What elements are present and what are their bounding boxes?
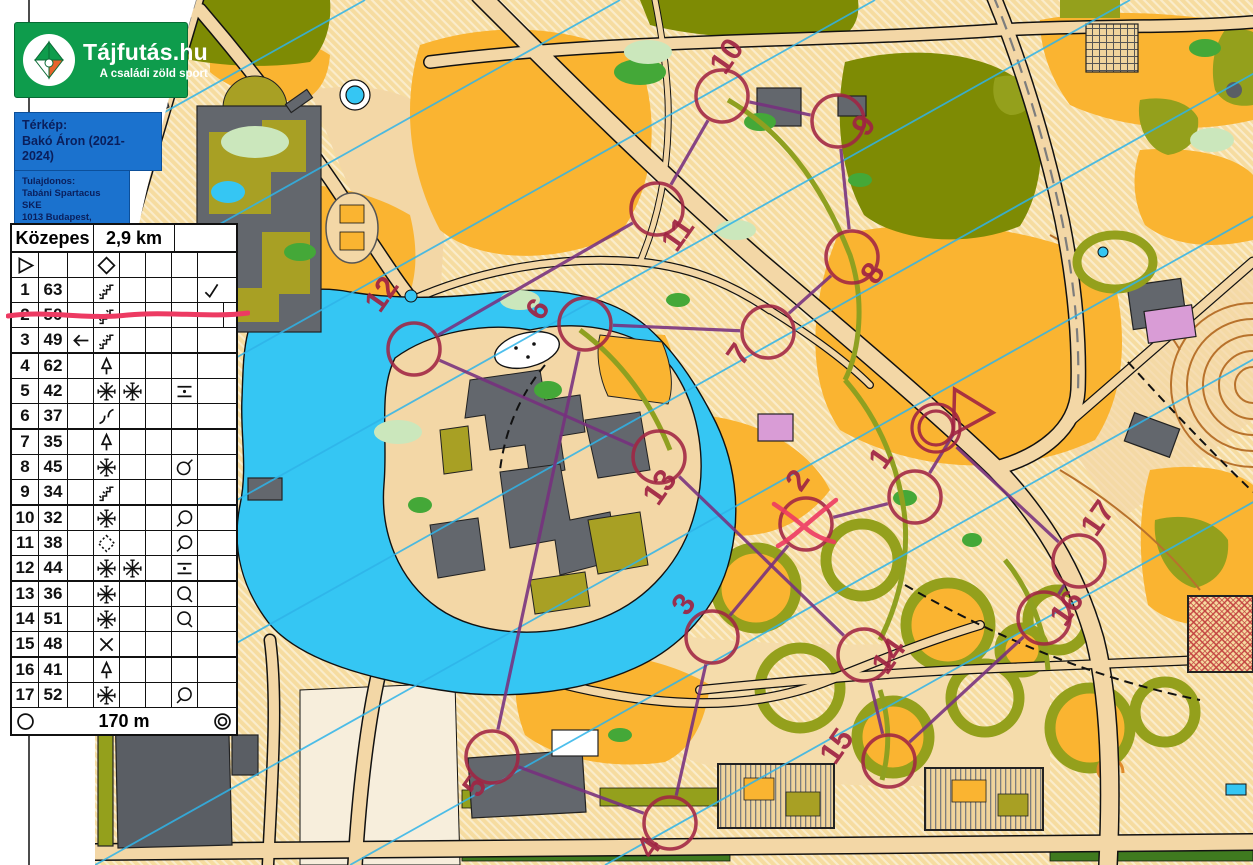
cell-d xyxy=(94,607,120,631)
control-number: 15 xyxy=(12,632,39,656)
control-code: 32 xyxy=(39,506,68,530)
owner-line: Tabáni Spartacus SKE xyxy=(22,188,122,212)
cell-e xyxy=(120,354,146,378)
cell-e xyxy=(120,531,146,555)
course-length: 2,9 km xyxy=(94,225,175,251)
cell-c xyxy=(68,658,94,682)
cell-d xyxy=(94,480,120,504)
cell-e xyxy=(120,430,146,454)
cell-d xyxy=(94,683,120,707)
cell-h xyxy=(198,506,224,530)
cell-g xyxy=(172,531,198,555)
cell-g xyxy=(172,658,198,682)
cell-d xyxy=(94,506,120,530)
control-description-card: Közepes 2,9 km 1632503494625426377358459… xyxy=(10,223,238,736)
card-row-5: 542 xyxy=(12,379,236,404)
cell-h xyxy=(198,303,224,327)
cell-g xyxy=(172,354,198,378)
thicket-icon xyxy=(96,558,117,579)
card-row-6: 637 xyxy=(12,404,236,430)
cell-h xyxy=(198,278,224,302)
cell-e xyxy=(120,253,146,277)
cell-h xyxy=(198,404,224,428)
pinwheel-compass-icon xyxy=(23,34,75,86)
cell-e xyxy=(120,683,146,707)
control-number: 16 xyxy=(12,658,39,682)
control-number: 14 xyxy=(12,607,39,631)
cell-e xyxy=(120,556,146,580)
side-w-icon xyxy=(174,533,195,554)
cell-e xyxy=(120,379,146,403)
cell-c xyxy=(68,455,94,479)
control-code: 41 xyxy=(39,658,68,682)
control-number: 17 xyxy=(12,683,39,707)
cell-h xyxy=(198,354,224,378)
stairway-icon xyxy=(96,305,117,326)
tree-icon xyxy=(96,432,117,453)
side-se-icon xyxy=(174,584,195,605)
card-row-13: 1336 xyxy=(12,582,236,607)
cell-h xyxy=(198,253,224,277)
side-ne-icon xyxy=(174,457,195,478)
stairway-icon xyxy=(96,330,117,351)
cell-d xyxy=(94,379,120,403)
control-code: 36 xyxy=(39,582,68,606)
cell-g xyxy=(172,455,198,479)
start-cell xyxy=(12,253,39,277)
cell-d xyxy=(94,278,120,302)
cell-c xyxy=(68,607,94,631)
cell-e xyxy=(120,328,146,352)
owner-label: Tulajdonos: xyxy=(22,176,75,187)
cell-f xyxy=(146,683,172,707)
cell-g xyxy=(172,683,198,707)
logo-title: Tájfutás.hu xyxy=(83,40,208,64)
card-row-3: 349 xyxy=(12,328,236,354)
cell-f xyxy=(146,658,172,682)
cell-e xyxy=(120,404,146,428)
cell-g xyxy=(172,430,198,454)
cell-c xyxy=(68,556,94,580)
cell-d xyxy=(94,404,120,428)
control-number: 8 xyxy=(12,455,39,479)
cell-c xyxy=(68,278,94,302)
map-credit-box: Térkép: Bakó Áron (2021-2024) xyxy=(14,112,162,171)
control-code: 49 xyxy=(39,328,68,352)
tree-icon xyxy=(96,356,117,377)
run-in-distance: 170 m xyxy=(40,711,208,732)
cell-h xyxy=(198,480,224,504)
cell-d xyxy=(94,303,120,327)
cell-h xyxy=(198,328,224,352)
cell-e xyxy=(120,582,146,606)
cell-c xyxy=(68,379,94,403)
cell-h xyxy=(198,531,224,555)
cell-h xyxy=(198,455,224,479)
between-icon xyxy=(174,381,195,402)
cell-h xyxy=(198,430,224,454)
cell-g xyxy=(172,632,198,656)
cell-c xyxy=(68,531,94,555)
control-number: 9 xyxy=(12,480,39,504)
cell-c xyxy=(68,506,94,530)
control-number: 7 xyxy=(12,430,39,454)
cell-h xyxy=(198,379,224,403)
cell-g xyxy=(172,480,198,504)
card-row-14: 1451 xyxy=(12,607,236,632)
cell-e xyxy=(120,278,146,302)
thicket-icon xyxy=(96,457,117,478)
cell-h xyxy=(198,582,224,606)
diamond-icon xyxy=(96,255,117,276)
card-row-1: 163 xyxy=(12,278,236,303)
control-code: 62 xyxy=(39,354,68,378)
cell-f xyxy=(146,480,172,504)
finish-circle-icon xyxy=(212,711,233,732)
x-cross-icon xyxy=(96,634,117,655)
card-row-8: 845 xyxy=(12,455,236,480)
card-row-15: 1548 xyxy=(12,632,236,658)
cell-f xyxy=(146,607,172,631)
open-diamond-icon xyxy=(96,533,117,554)
cell-e xyxy=(120,506,146,530)
cell-d xyxy=(94,531,120,555)
cell-f xyxy=(146,278,172,302)
tajfutas-logo[interactable]: Tájfutás.hu A családi zöld sport xyxy=(14,22,188,98)
cell-d xyxy=(94,582,120,606)
card-row-16: 1641 xyxy=(12,658,236,683)
tree-icon xyxy=(96,660,117,681)
cell-f xyxy=(146,506,172,530)
side-se-icon xyxy=(174,609,195,630)
cell-e xyxy=(120,632,146,656)
control-number: 1 xyxy=(12,278,39,302)
cell-f xyxy=(146,354,172,378)
cell-g xyxy=(172,607,198,631)
cell-d xyxy=(94,658,120,682)
thicket-icon xyxy=(96,584,117,605)
logo-subtitle: A családi zöld sport xyxy=(83,68,208,80)
stairway-icon xyxy=(96,280,117,301)
cell-f xyxy=(146,556,172,580)
cell-b xyxy=(39,253,68,277)
cell-c xyxy=(68,404,94,428)
cell-e xyxy=(120,607,146,631)
control-code: 42 xyxy=(39,379,68,403)
credit-value: Bakó Áron (2021-2024) xyxy=(22,134,125,164)
thicket-icon xyxy=(96,609,117,630)
cell-e xyxy=(120,480,146,504)
cell-g xyxy=(172,556,198,580)
cell-g xyxy=(172,253,198,277)
cell-h xyxy=(198,683,224,707)
orienteering-map-sheet: 1234567891011121314151617 Tájfutás.hu A … xyxy=(0,0,1253,865)
cell-c xyxy=(68,328,94,352)
cell-d xyxy=(94,556,120,580)
cell-d xyxy=(94,632,120,656)
cell-f xyxy=(146,632,172,656)
cell-g xyxy=(172,379,198,403)
cell-e xyxy=(120,455,146,479)
thicket-icon xyxy=(96,508,117,529)
control-code: 45 xyxy=(39,455,68,479)
cell-d xyxy=(94,354,120,378)
control-code: 37 xyxy=(39,404,68,428)
cell-g xyxy=(172,328,198,352)
control-code: 34 xyxy=(39,480,68,504)
control-code: 38 xyxy=(39,531,68,555)
header-blank xyxy=(175,225,236,251)
cell-f xyxy=(146,430,172,454)
control-number: 2 xyxy=(12,303,39,327)
control-code: 51 xyxy=(39,607,68,631)
cell-g xyxy=(172,303,198,327)
control-code: 63 xyxy=(39,278,68,302)
cell-c xyxy=(68,354,94,378)
thicket-icon xyxy=(96,381,117,402)
side-sw-icon xyxy=(174,685,195,706)
cell-g xyxy=(172,582,198,606)
between-icon xyxy=(174,558,195,579)
control-code: 35 xyxy=(39,430,68,454)
cell-f xyxy=(146,328,172,352)
cell-g xyxy=(172,278,198,302)
thicket-icon xyxy=(122,558,143,579)
cell-c xyxy=(68,582,94,606)
cell-f xyxy=(146,404,172,428)
control-number: 6 xyxy=(12,404,39,428)
cell-c xyxy=(68,253,94,277)
card-header: Közepes 2,9 km xyxy=(12,225,236,253)
cell-h xyxy=(198,632,224,656)
owner-line: 1013 Budapest, xyxy=(22,212,122,224)
card-row-12: 1244 xyxy=(12,556,236,582)
cell-f xyxy=(146,303,172,327)
cell-f xyxy=(146,455,172,479)
arrow-left-icon xyxy=(70,330,91,351)
cell-c xyxy=(68,480,94,504)
control-number: 4 xyxy=(12,354,39,378)
cell-f xyxy=(146,531,172,555)
course-name: Közepes xyxy=(12,225,94,251)
cell-f xyxy=(146,253,172,277)
stairway-icon xyxy=(96,482,117,503)
cell-d xyxy=(94,328,120,352)
cell-c xyxy=(68,430,94,454)
card-row-11: 1138 xyxy=(12,531,236,556)
control-number: 13 xyxy=(12,582,39,606)
control-number: 12 xyxy=(12,556,39,580)
control-code: 50 xyxy=(39,303,68,327)
cell-h xyxy=(198,556,224,580)
cell-d xyxy=(94,455,120,479)
cell-c xyxy=(68,632,94,656)
cell-g xyxy=(172,404,198,428)
control-code: 48 xyxy=(39,632,68,656)
card-start-row xyxy=(12,253,236,278)
card-row-7: 735 xyxy=(12,430,236,455)
cell-c xyxy=(68,303,94,327)
cell-h xyxy=(198,607,224,631)
cell-d xyxy=(94,253,120,277)
thicket-icon xyxy=(122,381,143,402)
control-code: 44 xyxy=(39,556,68,580)
cell-g xyxy=(172,506,198,530)
run-in-row: 170 m xyxy=(12,708,236,734)
cell-e xyxy=(120,658,146,682)
credit-label: Térkép: xyxy=(22,118,67,132)
card-row-17: 1752 xyxy=(12,683,236,708)
cell-f xyxy=(146,379,172,403)
control-number: 10 xyxy=(12,506,39,530)
card-row-4: 462 xyxy=(12,354,236,379)
cell-h xyxy=(198,658,224,682)
cell-e xyxy=(120,303,146,327)
card-row-9: 934 xyxy=(12,480,236,506)
cell-f xyxy=(146,582,172,606)
cell-d xyxy=(94,430,120,454)
start-triangle-icon xyxy=(15,255,36,276)
control-number: 11 xyxy=(12,531,39,555)
side-w-icon xyxy=(174,508,195,529)
control-number: 5 xyxy=(12,379,39,403)
card-row-10: 1032 xyxy=(12,506,236,531)
check-icon xyxy=(201,280,222,301)
bend-icon xyxy=(96,406,117,427)
card-row-2: 250 xyxy=(12,303,236,328)
control-code: 52 xyxy=(39,683,68,707)
thicket-icon xyxy=(96,685,117,706)
last-control-circle-icon xyxy=(15,711,36,732)
cell-c xyxy=(68,683,94,707)
control-number: 3 xyxy=(12,328,39,352)
